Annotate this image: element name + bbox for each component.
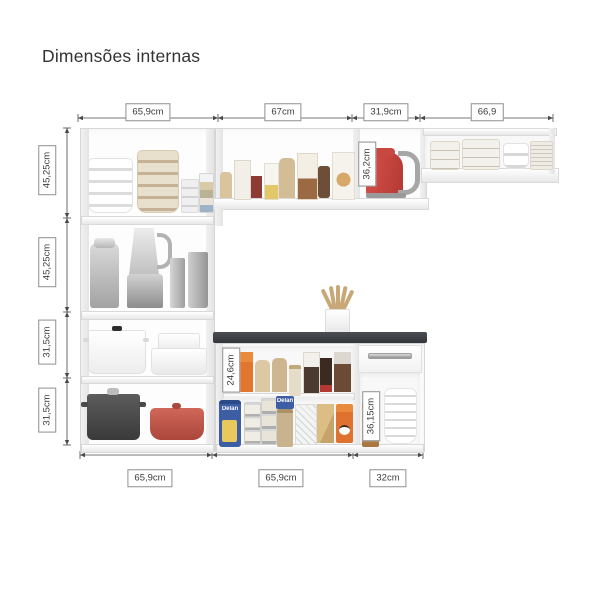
- canned-goods-stack: [244, 402, 261, 445]
- cabinet-side-return: [215, 208, 223, 226]
- food-item-bag: [279, 158, 295, 198]
- cabinet-shelf: [81, 216, 214, 225]
- striped-cups-stack: [199, 173, 214, 213]
- juicer: [90, 243, 119, 308]
- black-stockpot-knob: [107, 388, 119, 395]
- white-stockpot-knob: [112, 326, 122, 331]
- pot-handle: [83, 338, 89, 342]
- pasta-window: [222, 420, 237, 442]
- food-item-bag: [272, 358, 287, 392]
- food-item-coffee-box: [303, 352, 320, 394]
- kettle-handle: [398, 151, 420, 195]
- food-item-bag: [255, 360, 270, 392]
- dim-label-left-4: 31,5cm: [38, 387, 56, 432]
- canned-goods-stack: [261, 398, 277, 445]
- page-title: Dimensões internas: [42, 46, 200, 67]
- glass-cups-stack: [181, 179, 199, 213]
- red-dutch-oven-knob: [172, 403, 181, 409]
- food-item-box: [317, 404, 334, 443]
- dim-label-left-2: 45,25cm: [38, 237, 56, 287]
- cabinet-bottom-board: [81, 444, 214, 453]
- food-item-box: [238, 352, 253, 392]
- red-dutch-oven: [150, 408, 204, 440]
- dim-label-internal-counter-top: 24,6cm: [222, 347, 240, 392]
- dim-label-top-1: 65,9cm: [125, 103, 170, 121]
- food-item-canister-speckled: [295, 404, 317, 445]
- cabinet-shelf: [81, 376, 214, 384]
- drawer-handle: [368, 353, 412, 359]
- food-item-box: [251, 176, 262, 198]
- juicer-cap: [94, 238, 115, 248]
- metal-canister: [170, 258, 185, 308]
- pasta-bag-label: Delan: [219, 406, 241, 412]
- dim-label-left-3: 31,5cm: [38, 319, 56, 364]
- pasta-bag: Delan: [219, 400, 241, 447]
- food-item-bag: [220, 172, 232, 198]
- dim-label-internal-counter-bottom: 36,15cm: [362, 391, 380, 441]
- white-pot-large: [151, 348, 207, 375]
- food-item-canister: [277, 409, 293, 447]
- diagram-canvas: Dimensões internas 65,9cm 67cm 31,9cm 66…: [0, 0, 600, 600]
- dim-label-bottom-3: 32cm: [369, 469, 406, 487]
- black-stockpot: [87, 394, 140, 440]
- dim-label-internal-upper: 36,2cm: [358, 141, 376, 186]
- coffee-can: [336, 404, 353, 443]
- patterned-cups-stack: [430, 141, 460, 170]
- metal-pitcher: [188, 252, 208, 308]
- wall-shelf-bottom-board: [421, 168, 559, 183]
- countertop: [213, 332, 427, 343]
- dim-label-top-2: 67cm: [264, 103, 301, 121]
- white-stockpot: [88, 330, 146, 374]
- food-item-coffee-bag: [334, 352, 351, 392]
- pasta-pack: Delan: [276, 396, 294, 409]
- dim-label-top-4: 66,9: [471, 103, 504, 121]
- counter-bottom-board: [216, 444, 424, 453]
- dim-label-left-1: 45,25cm: [38, 145, 56, 195]
- pot-handle: [139, 402, 146, 407]
- white-bowls-stack: [88, 158, 133, 213]
- pot-handle: [143, 338, 149, 342]
- coffee-cup-art: [339, 425, 350, 435]
- dim-label-top-3: 31,9cm: [363, 103, 408, 121]
- patterned-cups-stack: [462, 139, 500, 170]
- beige-bowls-stack: [137, 150, 179, 213]
- kettle-base: [366, 193, 406, 198]
- pot-handle: [81, 402, 88, 407]
- pasta-pack-label: Delan: [276, 398, 294, 404]
- food-item-box: [320, 358, 332, 392]
- drawer-front: [358, 345, 422, 373]
- food-item-cookie-roll: [318, 166, 330, 198]
- blender-base: [127, 274, 163, 308]
- food-item-jar: [289, 365, 301, 396]
- food-item-carton: [264, 163, 279, 200]
- food-item-box: [234, 160, 251, 200]
- dim-label-bottom-1: 65,9cm: [127, 469, 172, 487]
- food-item-cereal-box: [297, 153, 318, 200]
- patterned-plates-stack: [530, 141, 553, 170]
- wall-shelf-top-board: [423, 128, 557, 136]
- food-item-donut-box: [332, 152, 355, 200]
- white-bowls-stack: [384, 388, 417, 444]
- dim-label-bottom-2: 65,9cm: [258, 469, 303, 487]
- white-bowls-pair: [503, 143, 529, 169]
- cabinet-shelf: [81, 311, 214, 320]
